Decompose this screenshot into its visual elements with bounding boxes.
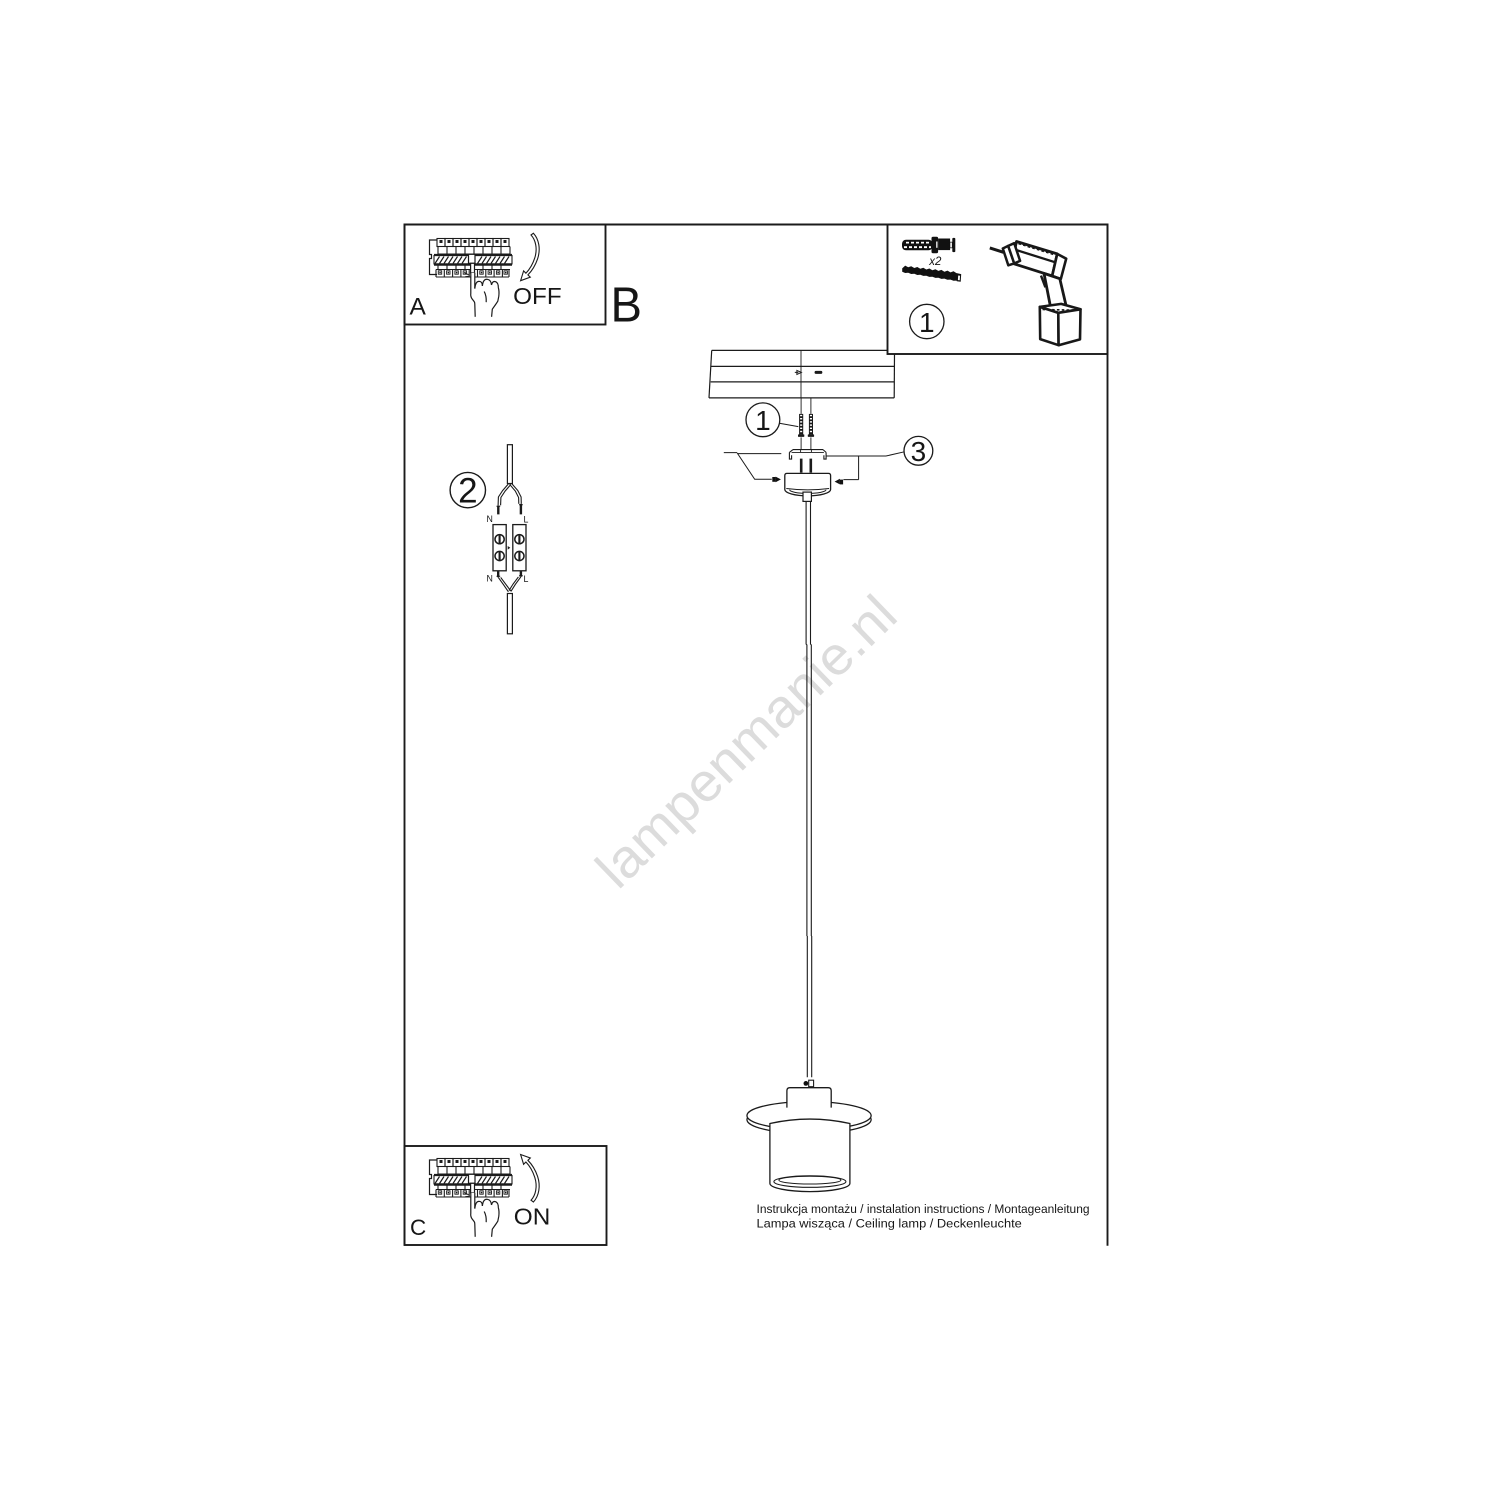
svg-text:N: N <box>487 573 493 583</box>
svg-text:OFF: OFF <box>513 283 562 309</box>
svg-text:x2: x2 <box>928 256 942 268</box>
svg-text:Instrukcja montażu / instalati: Instrukcja montażu / instalation instruc… <box>757 1202 1090 1216</box>
svg-text:ON: ON <box>514 1204 551 1230</box>
svg-text:Lampa wisząca / Ceiling lamp /: Lampa wisząca / Ceiling lamp / Deckenleu… <box>757 1217 1022 1231</box>
svg-text:N: N <box>487 514 493 524</box>
svg-text:L: L <box>523 574 528 584</box>
svg-text:1: 1 <box>919 307 935 338</box>
svg-text:2: 2 <box>458 472 477 511</box>
svg-text:C: C <box>410 1215 426 1240</box>
svg-text:A: A <box>410 293 427 320</box>
svg-text:1: 1 <box>755 405 771 436</box>
svg-text:L: L <box>523 514 528 524</box>
svg-text:B: B <box>611 278 643 333</box>
svg-text:3: 3 <box>911 436 927 467</box>
